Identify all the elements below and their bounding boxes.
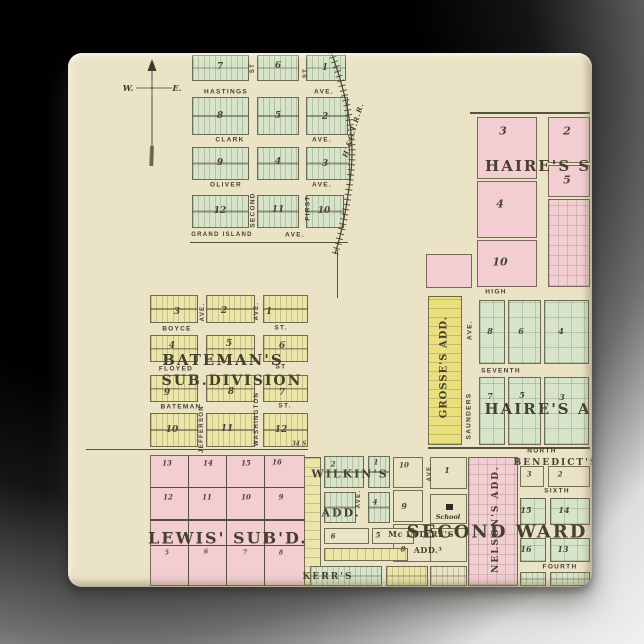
- plat-label-add: ADD.³: [414, 545, 443, 555]
- street-label-saunders: SAUNDERS: [466, 393, 473, 440]
- block-number-15: 15: [241, 459, 251, 468]
- block-number-12: 12: [275, 425, 288, 435]
- street-label-floyed: FLOYED: [159, 366, 193, 373]
- street-label-north: NORTH: [527, 448, 557, 455]
- block-number-1: 1: [444, 465, 450, 475]
- street-label-ave: AVE.: [254, 302, 260, 321]
- block-number-2: 2: [221, 306, 227, 316]
- block-number-3: 3: [527, 470, 532, 479]
- lot-number-8: 8: [279, 550, 283, 557]
- block-number-2: 2: [563, 125, 571, 138]
- street-label-ave: AVE.: [312, 137, 332, 144]
- street-label-boyce: BOYCE: [162, 326, 192, 333]
- street-label-seventh: SEVENTH: [481, 368, 521, 375]
- plat-name-benedicts: BENEDICT'S: [514, 458, 592, 468]
- block-number-11: 11: [202, 493, 212, 502]
- block-number-5: 5: [376, 531, 381, 540]
- block-number-11: 11: [221, 424, 234, 434]
- block-number-1: 1: [322, 63, 328, 73]
- street-label-ave: AVE.: [312, 182, 332, 189]
- block-number-7: 7: [279, 388, 285, 398]
- lot-number-5: 5: [165, 550, 169, 557]
- block-number-14: 14: [558, 505, 569, 515]
- block-number-12: 12: [163, 493, 173, 502]
- block-number-5: 5: [519, 390, 525, 400]
- block-number-4: 4: [275, 157, 281, 167]
- block-number-1: 1: [374, 458, 379, 467]
- street-label-st: ST.: [278, 403, 291, 410]
- section-marker: 34 S: [292, 441, 307, 448]
- block-number-2: 2: [558, 470, 563, 479]
- plat-label-add: ADD.: [321, 507, 360, 520]
- block-number-9: 9: [217, 158, 223, 168]
- block-number-10: 10: [399, 461, 409, 470]
- street-label-ave: AVE.: [356, 490, 362, 509]
- plat-map: W. E. HASTINGSAVE.CLARKAVE.OLIVERAVE.GRA…: [68, 53, 592, 587]
- block-number-10: 10: [166, 425, 179, 435]
- street-label-second: SECOND: [250, 192, 257, 228]
- plat-name-wilkins: WILKIN'S: [311, 468, 388, 481]
- block-number-6: 6: [275, 61, 281, 71]
- street-label-first: FIRST: [305, 195, 312, 220]
- product-photo: { "scene": { "description": "Square magn…: [0, 0, 644, 644]
- block-number-6: 6: [279, 341, 285, 351]
- block-number-3: 3: [174, 307, 180, 317]
- block-number-2: 2: [331, 460, 336, 469]
- street-label-hastings: HASTINGS: [204, 89, 248, 96]
- block-number-4: 4: [169, 341, 175, 351]
- block-number-8: 8: [228, 387, 234, 397]
- street-label-st: ST: [276, 364, 287, 371]
- lot-number-7: 7: [243, 550, 247, 557]
- block-number-15: 15: [520, 505, 531, 515]
- block-number-6: 6: [331, 532, 336, 541]
- map-labels-layer: HASTINGSAVE.CLARKAVE.OLIVERAVE.GRAND ISL…: [68, 53, 592, 587]
- street-label-bateman: BATEMAN: [160, 404, 201, 411]
- street-label-st: ST: [250, 63, 256, 73]
- block-number-3: 3: [499, 125, 507, 138]
- plat-name-kerrs: KERR'S: [303, 572, 354, 582]
- block-number-6: 6: [518, 326, 524, 336]
- street-label-grand-island: GRAND ISLAND: [191, 232, 253, 238]
- plat-name-nelsons-add: NELSON'S ADD.: [491, 465, 501, 573]
- plat-name-haires-add: HAIRE'S ADD: [484, 400, 592, 418]
- block-number-5: 5: [275, 111, 281, 121]
- block-number-14: 14: [203, 459, 213, 468]
- lot-number-6: 6: [204, 549, 208, 556]
- block-number-4: 4: [496, 198, 504, 211]
- plat-name-grosses-add: GROSSE'S ADD.: [439, 316, 450, 418]
- railroad-label: H.&G.I.R.R.: [340, 102, 365, 159]
- block-number-2: 2: [322, 112, 328, 122]
- street-label-ave: AVE.: [314, 89, 334, 96]
- block-number-10: 10: [318, 206, 331, 216]
- street-label-ave: AVE.: [200, 303, 206, 322]
- block-number-13: 13: [557, 544, 568, 554]
- block-number-8: 8: [217, 111, 223, 121]
- street-label-high: HIGH: [485, 289, 506, 296]
- street-label-st: ST: [303, 68, 309, 78]
- block-number-13: 13: [162, 459, 172, 468]
- block-number-1: 1: [266, 307, 272, 317]
- block-number-5: 5: [563, 174, 571, 187]
- plat-name-haires-sub: HAIRE'S SUB: [485, 157, 592, 175]
- block-number-16: 16: [520, 544, 531, 554]
- street-label-clark: CLARK: [215, 137, 244, 144]
- street-label-ave: AVE.: [427, 463, 433, 482]
- block-number-8: 8: [401, 545, 406, 554]
- street-label-sixth: SIXTH: [544, 488, 570, 495]
- block-number-10: 10: [241, 493, 251, 502]
- plat-name-lewis-subd: LEWIS' SUB'D.: [148, 529, 308, 548]
- street-label-ave: AVE.: [285, 232, 305, 239]
- street-label-st: ST.: [274, 325, 287, 332]
- street-label-jefferson: JEFFERSON: [199, 405, 205, 453]
- street-label-fourth: FOURTH: [543, 564, 578, 571]
- block-number-9: 9: [164, 388, 170, 398]
- block-number-4: 4: [373, 498, 378, 507]
- street-label-washington: WASHINGTON: [254, 392, 260, 446]
- block-number-7: 7: [217, 62, 223, 72]
- block-number-5: 5: [226, 339, 232, 349]
- block-number-8: 8: [487, 326, 493, 336]
- block-number-11: 11: [272, 205, 285, 215]
- block-number-3: 3: [322, 159, 328, 169]
- block-number-4: 4: [558, 326, 564, 336]
- block-number-9: 9: [279, 493, 284, 502]
- block-number-12: 12: [214, 206, 227, 216]
- plat-name-mcintyres: Mc INTYRE'S: [388, 529, 454, 539]
- block-number-16: 16: [272, 458, 282, 467]
- school-label: School: [436, 513, 461, 521]
- block-number-9: 9: [401, 501, 407, 511]
- map-magnet: W. E. HASTINGSAVE.CLARKAVE.OLIVERAVE.GRA…: [68, 53, 592, 587]
- block-number-10: 10: [492, 256, 507, 269]
- street-label-ave: AVE.: [467, 320, 474, 340]
- street-label-oliver: OLIVER: [210, 182, 242, 189]
